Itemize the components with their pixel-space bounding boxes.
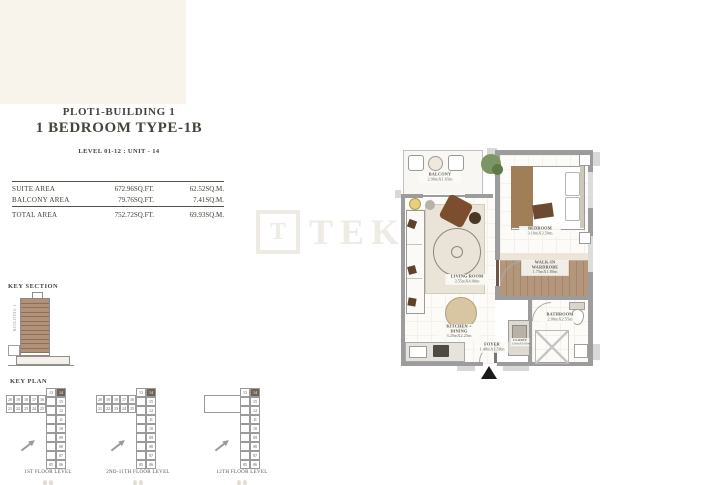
area-label: BALCONY AREA	[12, 196, 88, 204]
unit-cell: 06	[56, 460, 66, 469]
unit-cell: 13	[240, 388, 250, 397]
unit-cell: 15	[146, 397, 156, 406]
unit-cell	[136, 433, 146, 442]
kitchen-sink	[409, 346, 427, 358]
unit-cell-highlighted: 14	[250, 388, 260, 397]
dark-side-table	[469, 212, 481, 224]
brochure-page: PLOT1-BUILDING 1 1 BEDROOM TYPE-1B LEVEL…	[0, 0, 726, 485]
floor-lamp	[409, 198, 421, 210]
room-label-bathroom: BATHROOM2.00mX2.55m	[541, 312, 578, 323]
balcony-table	[428, 156, 443, 171]
tower-units: 1314151211100908070506	[240, 388, 260, 469]
area-label: SUITE AREA	[12, 185, 88, 193]
unit-cell: 19	[14, 395, 22, 404]
north-arrow-icon	[215, 442, 225, 451]
unit-cell	[46, 451, 56, 460]
unit-cell: 07	[56, 451, 66, 460]
key-section-drawing: BUILDING 1	[8, 291, 138, 377]
shower	[535, 330, 569, 364]
unit-cell-highlighted: 14	[146, 388, 156, 397]
nightstand	[579, 154, 591, 166]
key-plan-title: KEY PLAN	[10, 378, 47, 385]
unit-cell	[136, 415, 146, 424]
neighbor-wall-stub	[457, 366, 475, 371]
corner-tint-block	[0, 0, 186, 104]
unit-cell: 22	[14, 404, 22, 413]
sofa-pillow	[407, 297, 416, 306]
wall	[495, 296, 593, 300]
neighbor-wall-stub	[593, 344, 600, 360]
unit-cell: 24	[120, 404, 128, 413]
unit-cell: 21	[96, 404, 104, 413]
unit-cell	[240, 424, 250, 433]
level-unit-line: LEVEL 01-12 : UNIT - 14	[18, 148, 220, 155]
nightstand	[579, 232, 591, 244]
wing-units: 20191817162122232425	[96, 395, 136, 413]
unit-cell: 16	[128, 395, 136, 404]
wing-units: 20191817162122232425	[6, 395, 46, 413]
unit-cell: 20	[6, 395, 14, 404]
table-rule-top	[12, 181, 224, 182]
table-row-total: TOTAL AREA 752.72SQ.FT. 69.93SQ.M.	[12, 208, 224, 221]
unit-type-title: 1 BEDROOM TYPE-1B	[18, 120, 220, 137]
floor-plan: BALCONY2.90mX1.65m LIVING ROOM3.55mX4.00…	[395, 148, 607, 384]
stove	[433, 345, 449, 357]
key-plan-3: 131415121110090807050612TH FLOOR LEVEL	[198, 388, 286, 484]
unit-cell: 13	[46, 388, 56, 397]
unit-cell: 22	[104, 404, 112, 413]
unit-cell	[136, 406, 146, 415]
unit-cell: 25	[38, 404, 46, 413]
unit-cell: 17	[120, 395, 128, 404]
unit-cell	[46, 442, 56, 451]
unit-cell	[136, 424, 146, 433]
ground-line	[8, 365, 74, 366]
area-sqm: 62.52SQ.M.	[154, 185, 224, 193]
unit-cell: 16	[38, 395, 46, 404]
unit-cell	[240, 415, 250, 424]
unit-cell: 11	[250, 415, 260, 424]
key-plan-label: 12TH FLOOR LEVEL	[198, 470, 286, 475]
unit-cell: 09	[56, 433, 66, 442]
podium-base	[16, 356, 70, 365]
unit-cell: 09	[250, 433, 260, 442]
unit-cell: 07	[250, 451, 260, 460]
unit-cell: 13	[136, 388, 146, 397]
unit-cell	[240, 451, 250, 460]
bathroom-sink	[574, 344, 588, 358]
wall	[401, 194, 405, 366]
north-arrow-icon	[111, 442, 121, 451]
plant	[492, 164, 503, 175]
key-plan-diagrams: 2019181716212223242513141512111009080705…	[0, 388, 330, 484]
unit-cell	[46, 424, 56, 433]
room-label-bedroom: BEDROOM3.10mX3.50m	[519, 226, 561, 237]
unit-cell: 19	[104, 395, 112, 404]
entry-arrow	[481, 366, 497, 379]
brand-mark-icon	[133, 480, 137, 485]
unit-cell: 15	[250, 397, 260, 406]
unit-cell: 06	[250, 460, 260, 469]
unit-cell	[136, 451, 146, 460]
plot-title: PLOT1-BUILDING 1	[18, 106, 220, 118]
unit-cell: 10	[250, 424, 260, 433]
unit-cell	[46, 397, 56, 406]
key-section-title: KEY SECTION	[8, 283, 138, 290]
sofa-cushion-line	[407, 278, 422, 279]
unit-cell: 07	[146, 451, 156, 460]
room-label-wardrobe: WALK-IN WARDROBE1.75mX1.80m	[521, 260, 569, 275]
bed-blanket	[511, 166, 533, 228]
key-section: KEY SECTION BUILDING 1	[8, 283, 138, 379]
unit-cell: 23	[22, 404, 30, 413]
area-table: SUITE AREA 672.96SQ.FT. 62.52SQ.M. BALCO…	[12, 180, 224, 221]
watermark-logo-letter: T	[270, 219, 286, 246]
area-sqft: 672.96SQ.FT.	[88, 185, 154, 193]
bedroom-door-leaf	[496, 260, 499, 286]
watermark-logo: T	[256, 210, 300, 254]
washer	[512, 325, 527, 339]
wall	[401, 362, 483, 366]
unit-cell: 23	[112, 404, 120, 413]
neighbor-wall-stub	[593, 152, 600, 166]
neighbor-wall-stub	[503, 366, 529, 371]
headboard	[580, 166, 584, 228]
brand-mark-icon	[237, 480, 241, 485]
unit-cell: 08	[56, 442, 66, 451]
unit-cell: 10	[56, 424, 66, 433]
key-plan-label: 2ND-11TH FLOOR LEVEL	[94, 470, 182, 475]
room-label-kitchen: KITCHEN + DINING3.25mX2.25m	[437, 324, 480, 339]
unit-cell: 12	[146, 406, 156, 415]
area-sqft: 79.76SQ.FT.	[88, 196, 154, 204]
area-sqm: 69.93SQ.M.	[154, 211, 224, 219]
tower-units: 1314151211100908070506	[136, 388, 156, 469]
unit-cell: 17	[30, 395, 38, 404]
room-label-living: LIVING ROOM3.55mX4.00m	[445, 274, 488, 285]
side-table	[425, 200, 435, 210]
unit-cell: 05	[136, 460, 146, 469]
building-label: BUILDING 1	[12, 304, 17, 331]
unit-cell	[46, 406, 56, 415]
brand-mark-icon	[43, 480, 47, 485]
coffee-table-inner	[451, 246, 463, 258]
area-sqft: 752.72SQ.FT.	[88, 211, 154, 219]
unit-cell	[46, 433, 56, 442]
unit-cell: 05	[46, 460, 56, 469]
key-section-floor	[21, 349, 49, 354]
area-sqm: 7.41SQ.M.	[154, 196, 224, 204]
unit-cell	[136, 442, 146, 451]
unit-cell: 20	[96, 395, 104, 404]
unit-cell: 18	[22, 395, 30, 404]
low-block	[8, 345, 20, 356]
unit-cell	[46, 415, 56, 424]
tower-units: 1314151211100908070506	[46, 388, 66, 469]
unit-cell: 10	[146, 424, 156, 433]
key-plan-1: 2019181716212223242513141512111009080705…	[4, 388, 92, 484]
north-arrow-icon	[21, 442, 31, 451]
unit-cell	[240, 397, 250, 406]
unit-cell: 09	[146, 433, 156, 442]
window	[588, 172, 593, 208]
unit-cell	[136, 397, 146, 406]
page-header: PLOT1-BUILDING 1 1 BEDROOM TYPE-1B LEVEL…	[18, 106, 220, 155]
unit-cell: 12	[250, 406, 260, 415]
room-label-balcony: BALCONY2.90mX1.65m	[419, 172, 461, 183]
unit-cell: 11	[146, 415, 156, 424]
unit-cell: 15	[56, 397, 66, 406]
table-row: SUITE AREA 672.96SQ.FT. 62.52SQ.M.	[12, 183, 224, 194]
pillow	[565, 197, 580, 221]
key-plan-2: 2019181716212223242513141512111009080705…	[94, 388, 182, 484]
unit-cell: 24	[30, 404, 38, 413]
room-label-closet: CLOSET1.00mX0.90m	[511, 338, 530, 346]
unit-cell: 18	[112, 395, 120, 404]
unit-cell: 05	[240, 460, 250, 469]
pillow	[565, 172, 580, 196]
unit-cell: 12	[56, 406, 66, 415]
table-row: BALCONY AREA 79.76SQ.FT. 7.41SQ.M.	[12, 194, 224, 205]
unit-cell: 11	[56, 415, 66, 424]
area-label: TOTAL AREA	[12, 211, 88, 219]
balcony-chair	[448, 155, 464, 171]
sofa-cushion-line	[407, 244, 422, 245]
key-plan-label: 1ST FLOOR LEVEL	[4, 470, 92, 475]
unit-cell	[240, 406, 250, 415]
unit-cell: 06	[146, 460, 156, 469]
room-label-foyer: FOYER1.40mX1.50m	[475, 342, 508, 353]
unit-cell: 08	[250, 442, 260, 451]
unit-cell	[240, 442, 250, 451]
unit-cell-highlighted: 14	[56, 388, 66, 397]
table-rule-mid	[12, 206, 224, 207]
unit-cell: 08	[146, 442, 156, 451]
unit-cell: 25	[128, 404, 136, 413]
unit-cell	[240, 433, 250, 442]
balcony-chair	[408, 155, 424, 171]
bed-throw	[532, 203, 554, 220]
building-tower	[20, 298, 50, 356]
sliding-door	[423, 195, 465, 197]
unit-cell: 21	[6, 404, 14, 413]
